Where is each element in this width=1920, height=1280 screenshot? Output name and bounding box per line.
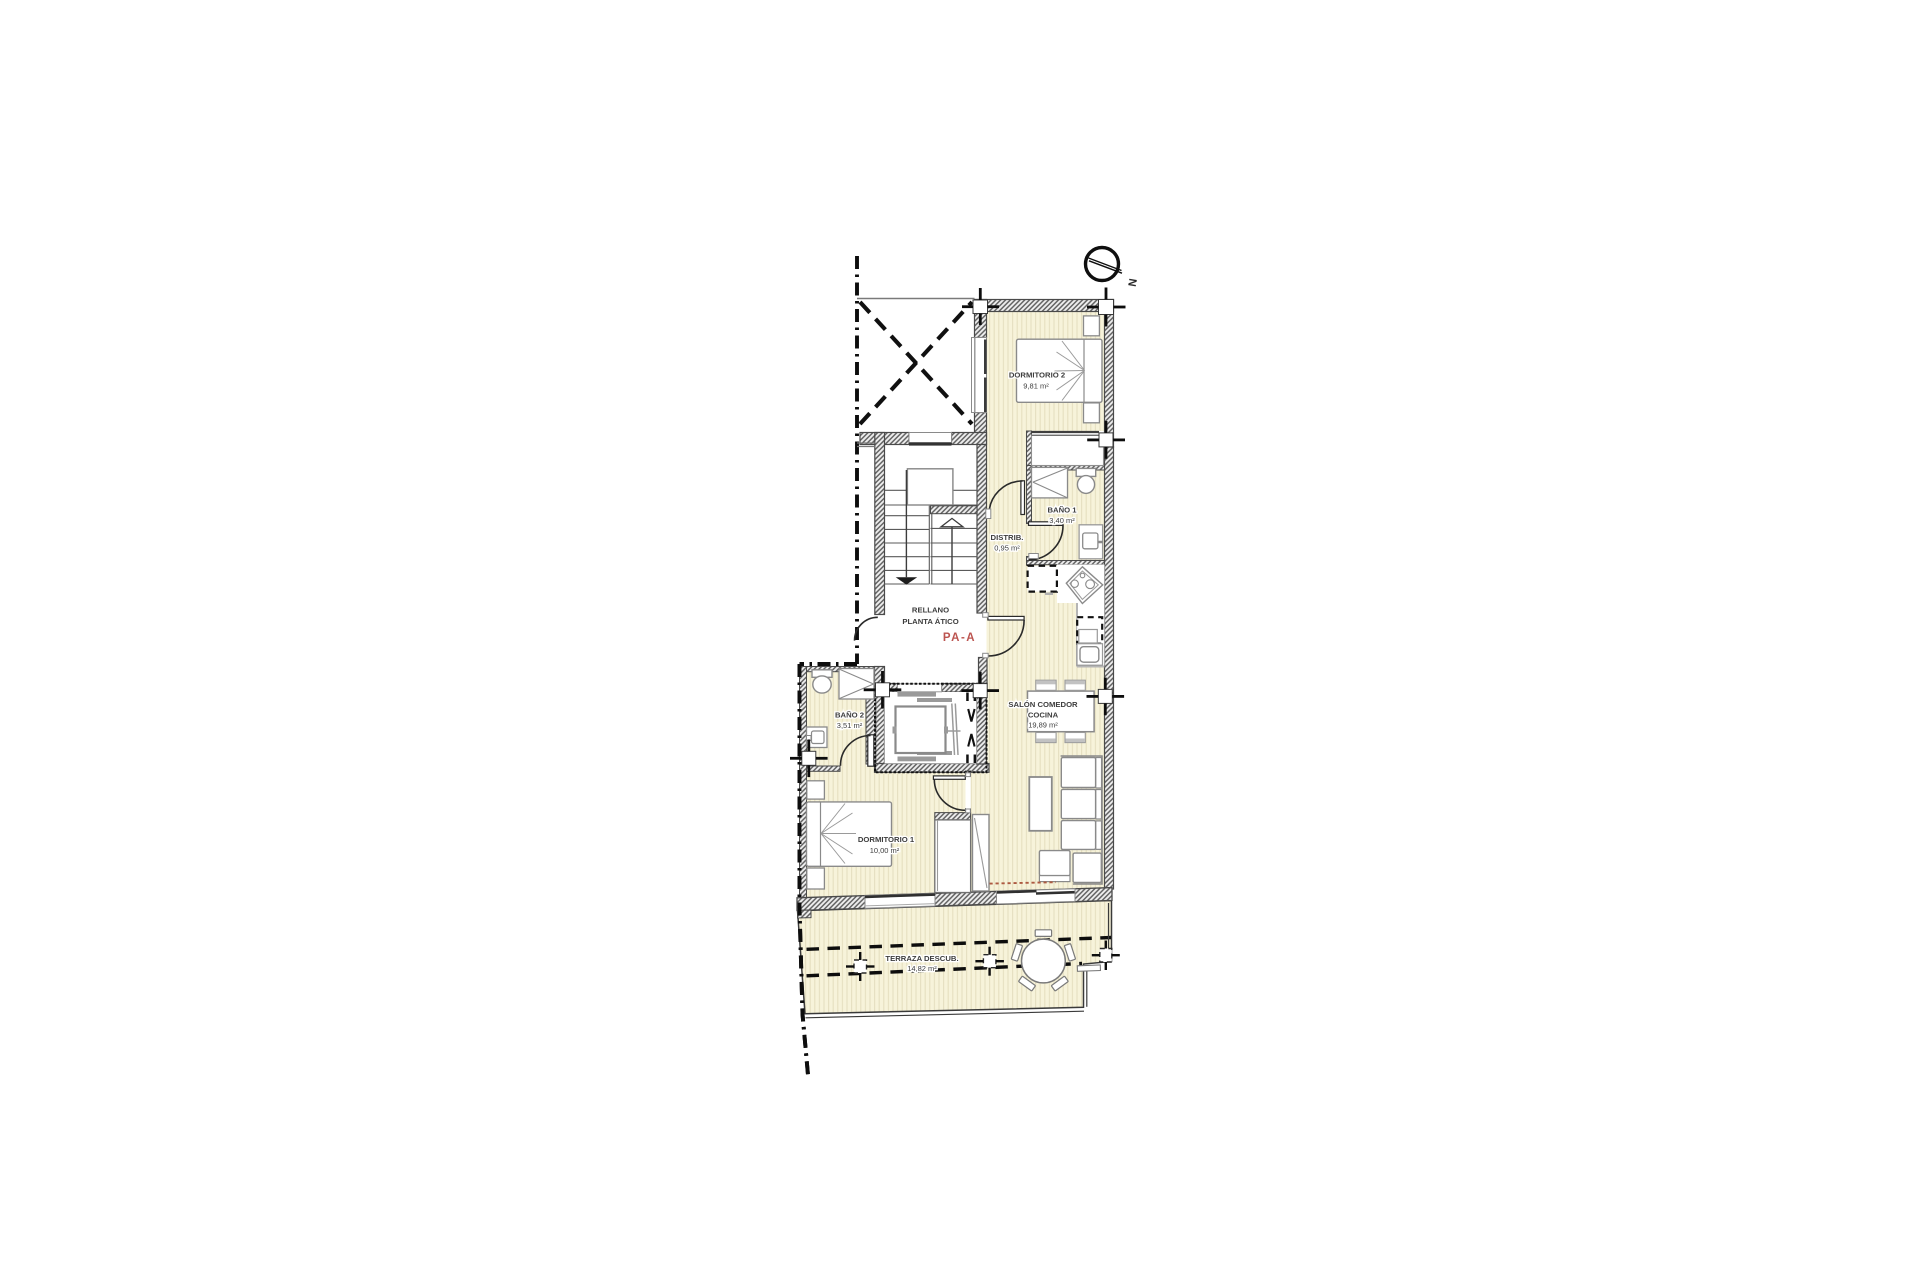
svg-text:SALÓN COMEDOR: SALÓN COMEDOR [1008, 700, 1078, 709]
svg-text:9,81 m²: 9,81 m² [1023, 382, 1049, 391]
svg-text:BAÑO 1: BAÑO 1 [1047, 506, 1077, 515]
svg-text:DORMITORIO 2: DORMITORIO 2 [1009, 371, 1065, 380]
svg-text:3,40 m²: 3,40 m² [1049, 516, 1075, 525]
svg-text:PLANTA ÁTICO: PLANTA ÁTICO [902, 617, 958, 626]
svg-text:3,51 m²: 3,51 m² [837, 721, 863, 730]
svg-text:BAÑO 2: BAÑO 2 [835, 711, 864, 720]
svg-text:DORMITORIO 1: DORMITORIO 1 [858, 835, 915, 844]
svg-text:14,82 m²: 14,82 m² [907, 964, 937, 973]
svg-text:COCINA: COCINA [1028, 711, 1059, 720]
svg-text:0,95 m²: 0,95 m² [994, 544, 1020, 553]
svg-text:19,89 m²: 19,89 m² [1028, 721, 1058, 730]
svg-text:10,00 m²: 10,00 m² [870, 846, 900, 855]
svg-text:TERRAZA DESCUB.: TERRAZA DESCUB. [885, 954, 958, 963]
svg-text:PA-A: PA-A [943, 632, 976, 644]
svg-text:DISTRIB.: DISTRIB. [991, 533, 1024, 542]
svg-text:RELLANO: RELLANO [912, 606, 949, 615]
